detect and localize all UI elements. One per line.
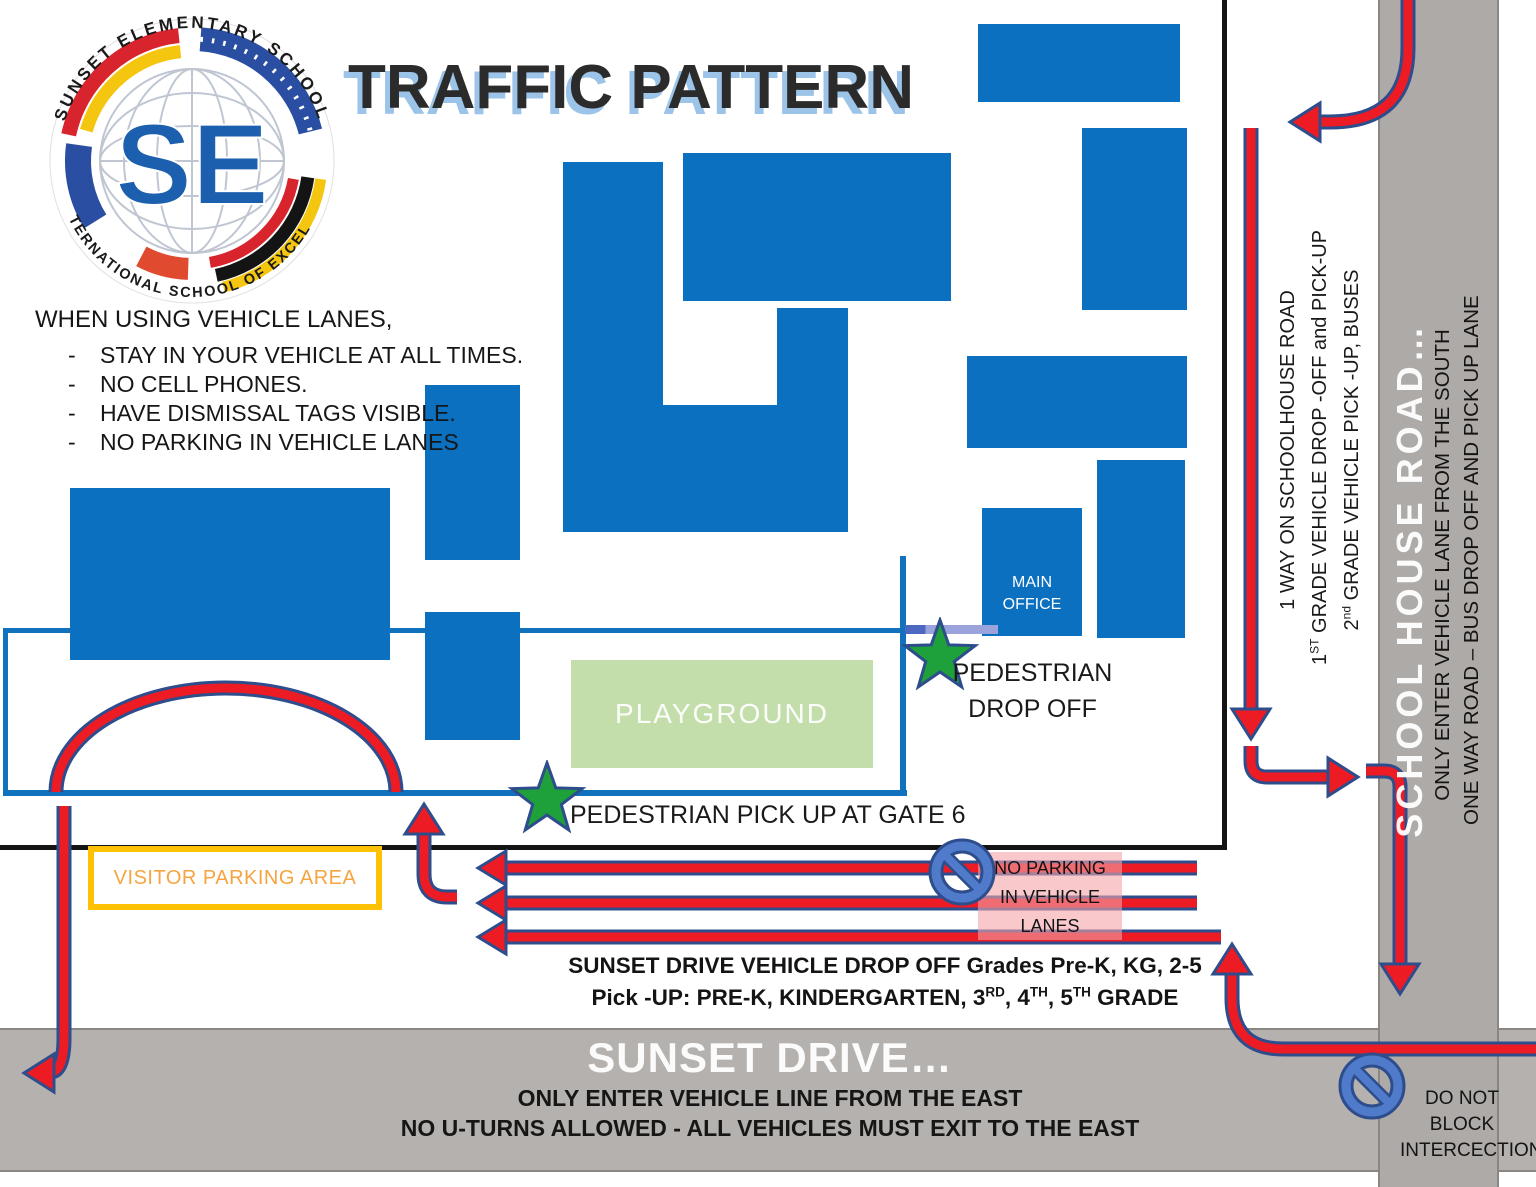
vehicle-lane-rules: WHEN USING VEHICLE LANES, -STAY IN YOUR … bbox=[35, 306, 535, 458]
arrowhead-down bbox=[1232, 709, 1270, 739]
arrowhead-left bbox=[1290, 103, 1320, 141]
arrowhead-left bbox=[478, 851, 506, 885]
sunset-drive-drop-off-note: SUNSET DRIVE VEHICLE DROP OFF Grades Pre… bbox=[555, 950, 1215, 1014]
schoolhouse-road-notes: 1 WAY ON SCHOOLHOUSE ROAD 1ST GRADE VEHI… bbox=[1272, 235, 1368, 665]
visitor-parking-area-box: VISITOR PARKING AREA bbox=[88, 846, 382, 910]
rules-heading: WHEN USING VEHICLE LANES, bbox=[35, 306, 535, 334]
arrowhead-up bbox=[1213, 944, 1251, 974]
traffic-pattern-map: PLAYGROUND bbox=[0, 0, 1536, 1187]
arrowhead-left bbox=[24, 1054, 54, 1092]
visitor-parking-label: VISITOR PARKING AREA bbox=[114, 867, 357, 890]
page-title: TRAFFIC PATTERN bbox=[348, 52, 914, 123]
do-not-block-label: DO NOT BLOCK INTERCECTION bbox=[1400, 1086, 1524, 1164]
second-grade-note: 2nd GRADE VEHICLE PICK -UP, BUSES bbox=[1336, 235, 1368, 665]
rule-item: -STAY IN YOUR VEHICLE AT ALL TIMES. bbox=[35, 342, 535, 371]
do-not-block-icon bbox=[1334, 1048, 1410, 1124]
sunset-drive-name: SUNSET DRIVE… bbox=[300, 1034, 1240, 1082]
logo-monogram: SE bbox=[115, 101, 268, 229]
school-logo: SUNSET ELEMENTARY SCHOOL AN INTERNATIONA… bbox=[42, 16, 342, 306]
pedestrian-pick-up-label: PEDESTRIAN PICK UP AT GATE 6 bbox=[570, 801, 965, 830]
pedestrian-drop-off-label: PEDESTRIAN DROP OFF bbox=[950, 655, 1115, 727]
rule-item: -NO PARKING IN VEHICLE LANES bbox=[35, 429, 535, 458]
arrowhead-down bbox=[1381, 964, 1419, 994]
sunset-drive-labels: SUNSET DRIVE… ONLY ENTER VEHICLE LINE FR… bbox=[300, 1034, 1240, 1142]
school-house-road-rules: ONLY ENTER VEHICLE LANE FROM THE SOUTH O… bbox=[1427, 305, 1487, 825]
rule-item: -NO CELL PHONES. bbox=[35, 371, 535, 400]
arrow-campus-loop-arc bbox=[56, 688, 396, 792]
first-grade-note: 1ST GRADE VEHICLE DROP -OFF and PICK-UP bbox=[1304, 235, 1336, 665]
school-house-road-name: SCHOOL HOUSE ROAD… bbox=[1388, 300, 1432, 860]
one-way-note: 1 WAY ON SCHOOLHOUSE ROAD bbox=[1272, 235, 1304, 665]
rule-item: -HAVE DISMISSAL TAGS VISIBLE. bbox=[35, 400, 535, 429]
arrow-sunset-entry bbox=[1232, 971, 1536, 1049]
no-parking-icon bbox=[924, 834, 1000, 910]
arrowhead-left bbox=[478, 886, 506, 920]
arrowhead-left bbox=[478, 920, 506, 954]
bottom-red-arc bbox=[141, 256, 188, 269]
arrowhead-up bbox=[405, 804, 443, 834]
main-office-label: MAIN OFFICE bbox=[982, 572, 1082, 616]
arrowhead-right bbox=[1328, 758, 1358, 796]
